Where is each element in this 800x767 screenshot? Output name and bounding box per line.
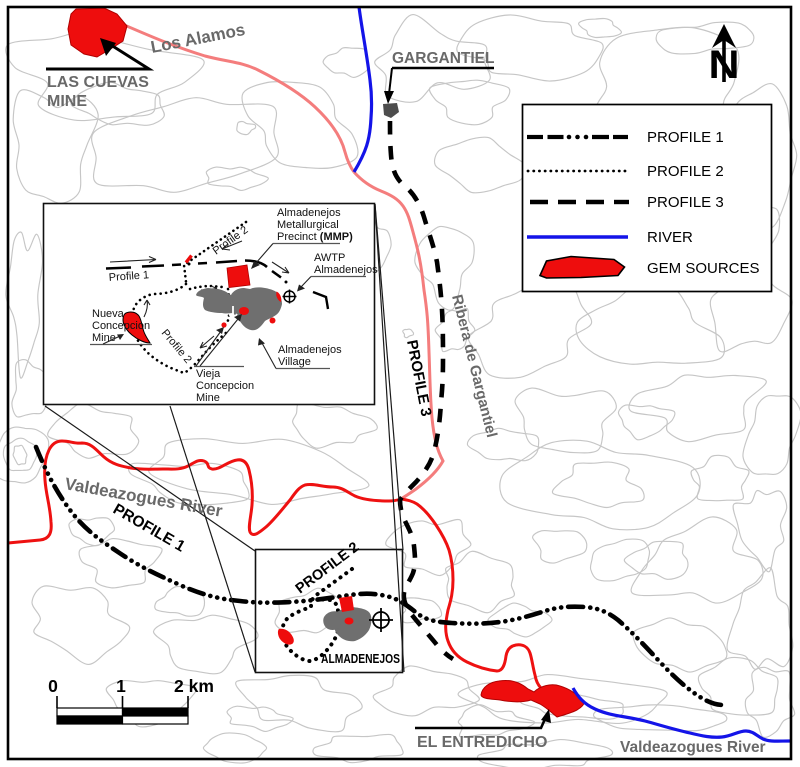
svg-text:2 km: 2 km xyxy=(174,676,214,696)
svg-text:Vieja: Vieja xyxy=(196,368,221,380)
svg-text:Mine: Mine xyxy=(196,392,220,404)
svg-text:Mine: Mine xyxy=(92,332,116,344)
svg-text:Concepcion: Concepcion xyxy=(92,320,150,332)
svg-text:Almadenejos: Almadenejos xyxy=(314,264,378,276)
svg-text:MINE: MINE xyxy=(47,93,87,110)
svg-text:Village: Village xyxy=(278,356,311,368)
svg-text:RIVER: RIVER xyxy=(647,229,693,246)
svg-text:Precinct (MMP): Precinct (MMP) xyxy=(277,231,353,243)
svg-text:Concepcion: Concepcion xyxy=(196,380,254,392)
svg-text:EL ENTREDICHO: EL ENTREDICHO xyxy=(417,734,547,751)
svg-text:AWTP: AWTP xyxy=(314,252,345,264)
svg-text:PROFILE 2: PROFILE 2 xyxy=(647,163,724,180)
svg-text:Nueva: Nueva xyxy=(92,308,125,320)
svg-text:Valdeazogues River: Valdeazogues River xyxy=(620,739,766,756)
svg-text:PROFILE 3: PROFILE 3 xyxy=(647,194,724,211)
svg-text:LAS CUEVAS: LAS CUEVAS xyxy=(47,74,149,91)
svg-text:Almadenejos: Almadenejos xyxy=(277,207,341,219)
svg-text:Almadenejos: Almadenejos xyxy=(278,344,342,356)
svg-text:N: N xyxy=(709,43,740,87)
svg-text:ALMADENEJOS: ALMADENEJOS xyxy=(321,651,400,666)
svg-text:Metallurgical: Metallurgical xyxy=(277,219,339,231)
svg-text:GEM SOURCES: GEM SOURCES xyxy=(647,260,760,277)
svg-text:1: 1 xyxy=(116,676,126,696)
svg-text:0: 0 xyxy=(48,676,58,696)
svg-text:PROFILE 1: PROFILE 1 xyxy=(647,129,724,146)
svg-text:GARGANTIEL: GARGANTIEL xyxy=(392,50,494,67)
